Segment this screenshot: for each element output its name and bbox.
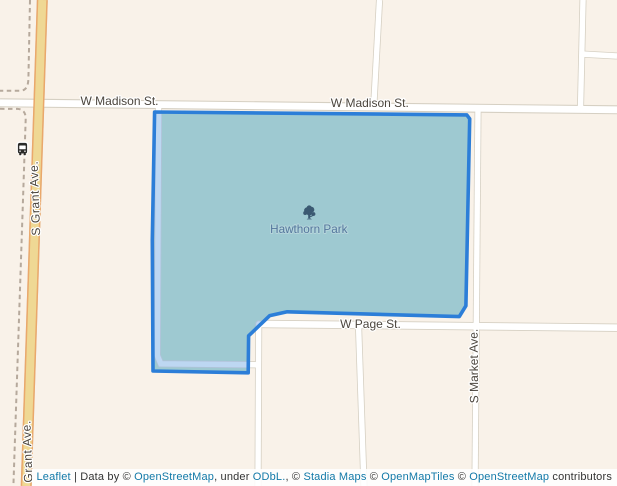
svg-text:W Madison St.: W Madison St. — [331, 96, 409, 110]
svg-text:Hawthorn Park: Hawthorn Park — [270, 223, 347, 236]
svg-text:W Madison St.: W Madison St. — [80, 94, 158, 108]
svg-text:S Market Ave.: S Market Ave. — [467, 329, 482, 404]
svg-text:S Grant Ave.: S Grant Ave. — [27, 160, 43, 235]
svg-text:W Page St.: W Page St. — [340, 317, 401, 331]
